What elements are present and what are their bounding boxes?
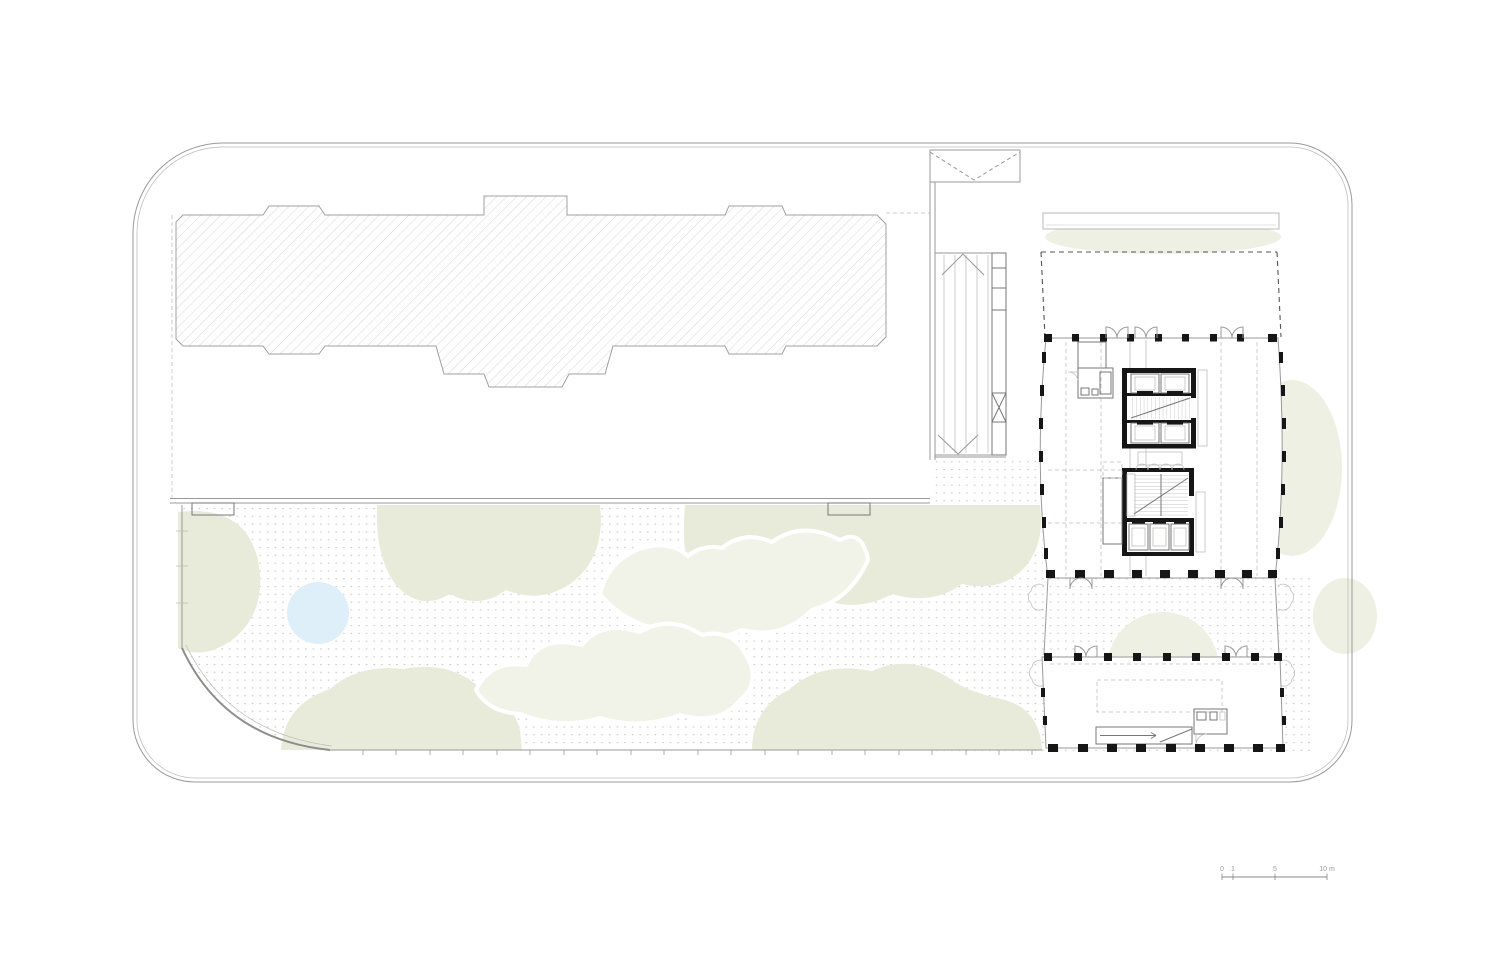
upper-floor-overhang-dashed — [1041, 252, 1281, 337]
entrance-canopy — [1043, 213, 1279, 229]
tower-entrance-doors — [1106, 327, 1243, 338]
site-plan-canvas: 0 1 5 10 m — [0, 0, 1500, 960]
existing-building — [170, 182, 935, 515]
pavilion-plan — [1041, 646, 1286, 752]
tower-plan — [1039, 213, 1286, 589]
site-gate — [930, 150, 1020, 182]
site-plan-drawing: 0 1 5 10 m — [0, 0, 1500, 960]
tower-columns-north — [1044, 334, 1277, 342]
pond — [287, 582, 349, 644]
pavilion-floor-plate — [1042, 657, 1283, 748]
elevator-core-upper — [1122, 368, 1207, 449]
scale-label-0: 0 — [1220, 866, 1224, 873]
scale-bar: 0 1 5 10 m — [1220, 866, 1335, 880]
tower-columns-south — [1046, 570, 1277, 578]
core-stair-upper — [1131, 397, 1190, 419]
scale-label-1: 1 — [1231, 866, 1235, 873]
scale-label-5: 5 — [1273, 866, 1277, 873]
scale-label-10m: 10 m — [1319, 866, 1335, 873]
tree-right-of-plaza — [1313, 578, 1377, 654]
parking-ramp — [935, 253, 1006, 457]
core-stair-lower — [1127, 474, 1188, 516]
